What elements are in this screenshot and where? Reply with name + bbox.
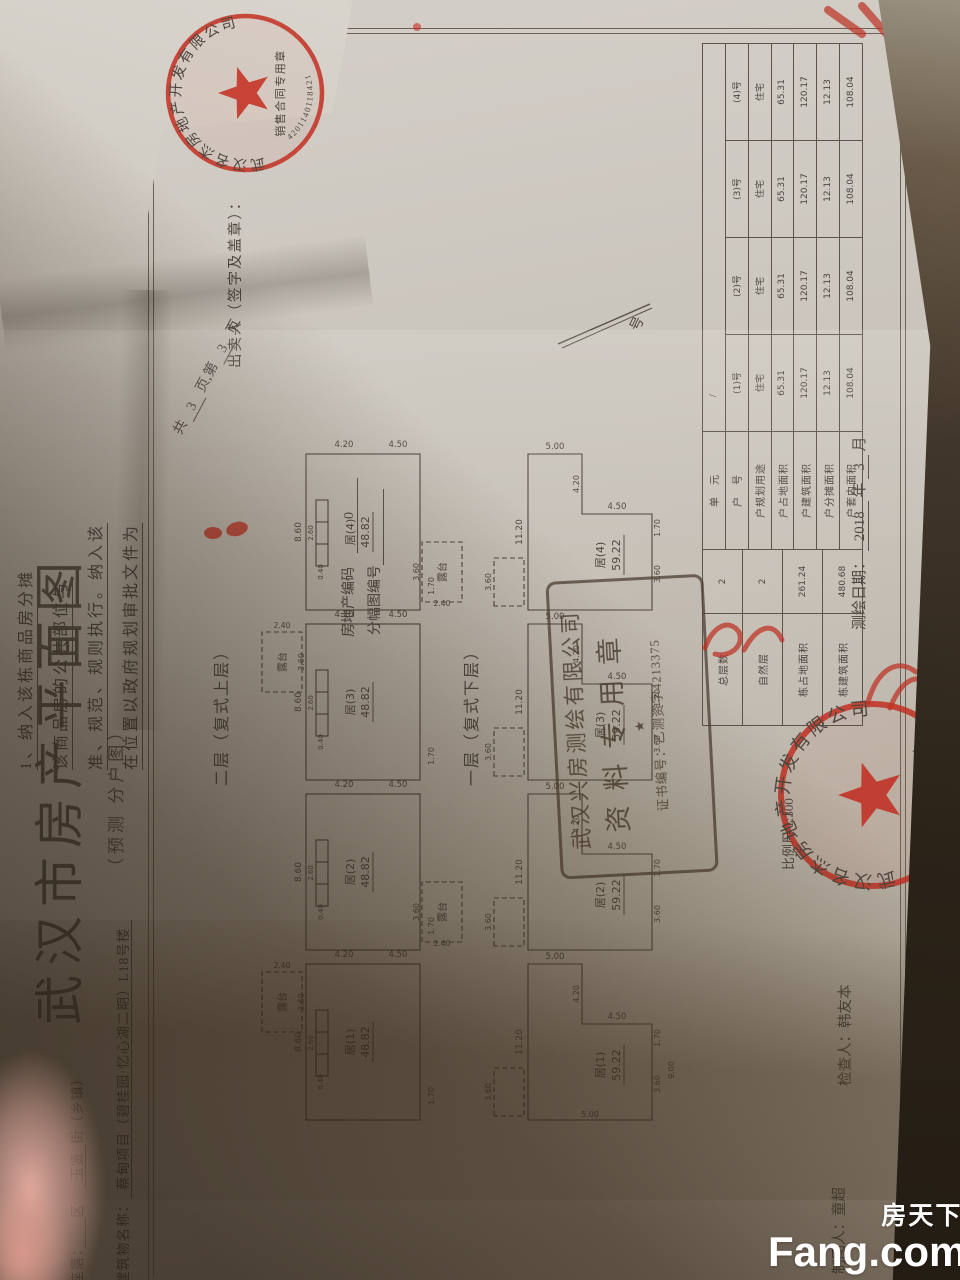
table-row-label: 单 元 [703, 431, 726, 549]
svg-text:11.20: 11.20 [515, 859, 525, 885]
building-line: 建筑物名称：蔡甸项目（碧桂园·忆心湖二期）L18号楼 [112, 950, 132, 1280]
table-row-label: 户规划用途 [749, 431, 772, 549]
svg-text:1.70: 1.70 [427, 917, 436, 935]
svg-text:2.60: 2.60 [307, 695, 315, 711]
svg-text:3.60: 3.60 [412, 903, 421, 921]
terrace-outline [494, 1068, 524, 1116]
svg-text:11.20: 11.20 [515, 1029, 525, 1055]
svg-text:4.50: 4.50 [608, 502, 627, 512]
unit-label: 居(2) [344, 859, 357, 886]
table-cell: 108.04 [840, 140, 863, 237]
svg-text:2.60: 2.60 [307, 525, 315, 541]
svg-text:5.00: 5.00 [546, 442, 565, 452]
table-row-label: 户 号 [726, 431, 749, 549]
contract-red-stamp: 武汉名杰房地产开发有限公司 销售合同专用章 4201140118421 [160, 8, 330, 178]
terrace-outline [494, 898, 524, 946]
table-cell-merged: / [703, 43, 726, 431]
svg-text:1.70: 1.70 [427, 747, 436, 765]
contract-line: 准、规范、规则执行。纳入该 [82, 523, 108, 770]
table-cell: 12.13 [817, 334, 840, 431]
checker-line: 检查人：韩友本 [834, 896, 860, 1086]
watermark: 房天下 Fang.com [768, 1204, 960, 1273]
building-label: 建筑物名称： [116, 1198, 131, 1280]
terrace-label: 露台 [276, 992, 289, 1012]
svg-text:2.40: 2.40 [274, 961, 291, 970]
svg-text:4.50: 4.50 [608, 1012, 627, 1022]
svg-text:3.60: 3.60 [484, 573, 493, 591]
contract-line: 1、纳入该栋商品房分摊 [12, 569, 38, 770]
watermark-en: Fang.com [768, 1231, 960, 1273]
table-cell: (3)号 [726, 140, 749, 237]
svg-text:2.40: 2.40 [434, 939, 451, 948]
table-cell: 120.17 [794, 43, 817, 140]
svg-text:0.40: 0.40 [317, 564, 325, 580]
svg-text:4.20: 4.20 [335, 780, 354, 790]
unit-area: 48.82 [359, 686, 372, 718]
svg-text:1.70: 1.70 [653, 1029, 662, 1047]
svg-text:8.60: 8.60 [294, 1032, 304, 1052]
terrace-label: 露台 [436, 902, 449, 922]
unit-label: 居(4) [594, 542, 607, 569]
unit-label: 居(1) [594, 1052, 607, 1079]
table-cell: 120.17 [794, 334, 817, 431]
svg-text:5.00: 5.00 [546, 952, 565, 962]
table-row-label: 户分摊面积 [817, 431, 840, 549]
stair-core [316, 670, 328, 736]
contract-line: 该商品房的公共部位与 [47, 580, 73, 770]
svg-text:3.60: 3.60 [653, 905, 662, 923]
svg-text:4.20: 4.20 [335, 440, 354, 450]
unit-label: 居(3) [344, 689, 357, 716]
svg-text:2.40: 2.40 [274, 621, 291, 630]
table-cell: 住宅 [749, 43, 772, 140]
svg-text:3.60: 3.60 [297, 993, 306, 1011]
table-cell-value: 2 [743, 549, 783, 613]
table-cell: 12.13 [817, 43, 840, 140]
contract-line: 在位置以政府规划审批文件为 [117, 523, 143, 770]
stair-core [316, 840, 328, 906]
table-cell: (1)号 [726, 334, 749, 431]
svg-text:2.40: 2.40 [434, 599, 451, 608]
survey-date-line: 测绘日期： 2018 年 3 月 [848, 350, 878, 630]
svg-text:3.60: 3.60 [484, 743, 493, 761]
table-cell: 108.04 [840, 43, 863, 140]
terrace-label: 露台 [436, 562, 449, 582]
svg-text:4.50: 4.50 [389, 610, 408, 620]
number-pointer-mark: 号 [552, 288, 672, 358]
floor2-plan: 8.602.600.40居(1)48.824.204.501.70露台3.602… [256, 440, 472, 1130]
stair-core [316, 1010, 328, 1076]
svg-text:1.70: 1.70 [653, 519, 662, 537]
svg-text:3.60: 3.60 [297, 653, 306, 671]
table-cell: 65.31 [772, 237, 795, 334]
corner-stamp-banner: 销售合同专用章 [912, 742, 927, 847]
table-cell: (4)号 [726, 43, 749, 140]
unit-label: 居(1) [344, 1029, 357, 1056]
svg-text:3.60: 3.60 [653, 1075, 662, 1093]
seller-signature-line: 出卖人（签字及盖章）： [224, 198, 250, 368]
table-cell-value: 261.24 [783, 549, 823, 613]
terrace-label: 露台 [276, 652, 289, 672]
svg-text:4.50: 4.50 [389, 780, 408, 790]
svg-text:2.60: 2.60 [307, 1035, 315, 1051]
svg-text:4.20: 4.20 [572, 475, 581, 493]
svg-text:2.60: 2.60 [307, 865, 315, 881]
svg-text:5.00: 5.00 [581, 1110, 599, 1119]
svg-text:0.40: 0.40 [317, 1074, 325, 1090]
table-cell: 65.31 [772, 334, 795, 431]
svg-text:4.50: 4.50 [389, 950, 408, 960]
table-unit-block: 单 元/户 号(1)号(2)号(3)号(4)号户规划用途住宅住宅住宅住宅户占地面… [703, 43, 863, 549]
watermark-cn: 房天下 [768, 1204, 960, 1229]
table-cell: (2)号 [726, 237, 749, 334]
unit-outline [528, 964, 652, 1120]
area-table: 总层数2自然层2栋占地面积261.24栋建筑面积480.68单 元/户 号(1)… [702, 43, 863, 726]
svg-text:4.20: 4.20 [335, 610, 354, 620]
svg-text:8.60: 8.60 [294, 522, 304, 542]
svg-text:11.20: 11.20 [515, 519, 525, 545]
svg-text:3.60: 3.60 [412, 563, 421, 581]
table-cell: 12.13 [817, 237, 840, 334]
svg-text:8.60: 8.60 [294, 692, 304, 712]
photo-canvas: 武汉市房产平面图 （预测 分户图） 座落： 区 玉贤街（乡镇） 建筑物名称：蔡甸… [0, 0, 960, 1280]
svg-text:4.50: 4.50 [389, 440, 408, 450]
svg-text:1.70: 1.70 [427, 1087, 436, 1105]
surveyor-stamp: 武汉兴房测绘有限公司 资料专用章 ★ 证书编号：乙测资字4213375 [545, 566, 726, 879]
table-cell: 108.04 [840, 237, 863, 334]
svg-text:0.40: 0.40 [317, 904, 325, 920]
svg-text:1.70: 1.70 [427, 577, 436, 595]
svg-text:4.20: 4.20 [572, 985, 581, 1003]
survey-date-label: 测绘日期： [852, 555, 868, 630]
svg-text:9.00: 9.00 [667, 1061, 676, 1079]
unit-label: 居(2) [594, 882, 607, 909]
terrace-outline [494, 558, 524, 606]
svg-text:3.60: 3.60 [484, 1083, 493, 1101]
table-cell: 65.31 [772, 43, 795, 140]
unit-area: 48.82 [359, 516, 372, 548]
unit-area: 48.82 [359, 1026, 372, 1058]
unit-area: 59.22 [610, 879, 623, 911]
survey-date-year: 2018 [852, 501, 869, 551]
corner-red-stamp: 武汉名杰房地产开发有限公司 销售合同专用章 [772, 695, 960, 895]
svg-text:3.60: 3.60 [484, 913, 493, 931]
table-cell: 12.13 [817, 140, 840, 237]
unit-label: 居(4) [344, 519, 357, 546]
table-row-label: 户建筑面积 [794, 431, 817, 549]
terrace-outline [494, 728, 524, 776]
survey-date-month: 3 [852, 455, 869, 479]
floor2-plan-group: 8.602.600.40居(1)48.824.204.501.70露台3.602… [256, 440, 472, 1130]
table-cell: 住宅 [749, 334, 772, 431]
unit-area: 48.82 [359, 856, 372, 888]
unit-area: 59.22 [610, 539, 623, 571]
area-table-group: 总层数2自然层2栋占地面积261.24栋建筑面积480.68单 元/户 号(1)… [702, 26, 870, 726]
svg-text:4.20: 4.20 [335, 950, 354, 960]
table-cell: 住宅 [749, 140, 772, 237]
svg-text:11.20: 11.20 [515, 689, 525, 715]
table-cell: 住宅 [749, 237, 772, 334]
building-name: 蔡甸项目（碧桂园·忆心湖二期）L18号楼 [116, 920, 132, 1198]
table-cell: 120.17 [794, 140, 817, 237]
contract-stamp-banner: 销售合同专用章 [273, 49, 287, 137]
table-cell: 120.17 [794, 237, 817, 334]
unit-area: 59.22 [610, 1049, 623, 1081]
contract-text-block: 1、纳入该栋商品房分摊 该商品房的公共部位与 准、规范、规则执行。纳入该 在位置… [12, 6, 154, 770]
stair-core [316, 500, 328, 566]
table-row-label: 户占地面积 [772, 431, 795, 549]
svg-text:8.60: 8.60 [294, 862, 304, 882]
svg-text:0.40: 0.40 [317, 734, 325, 750]
floor2-caption: 二层（复式上层） [208, 596, 232, 786]
table-cell: 65.31 [772, 140, 795, 237]
